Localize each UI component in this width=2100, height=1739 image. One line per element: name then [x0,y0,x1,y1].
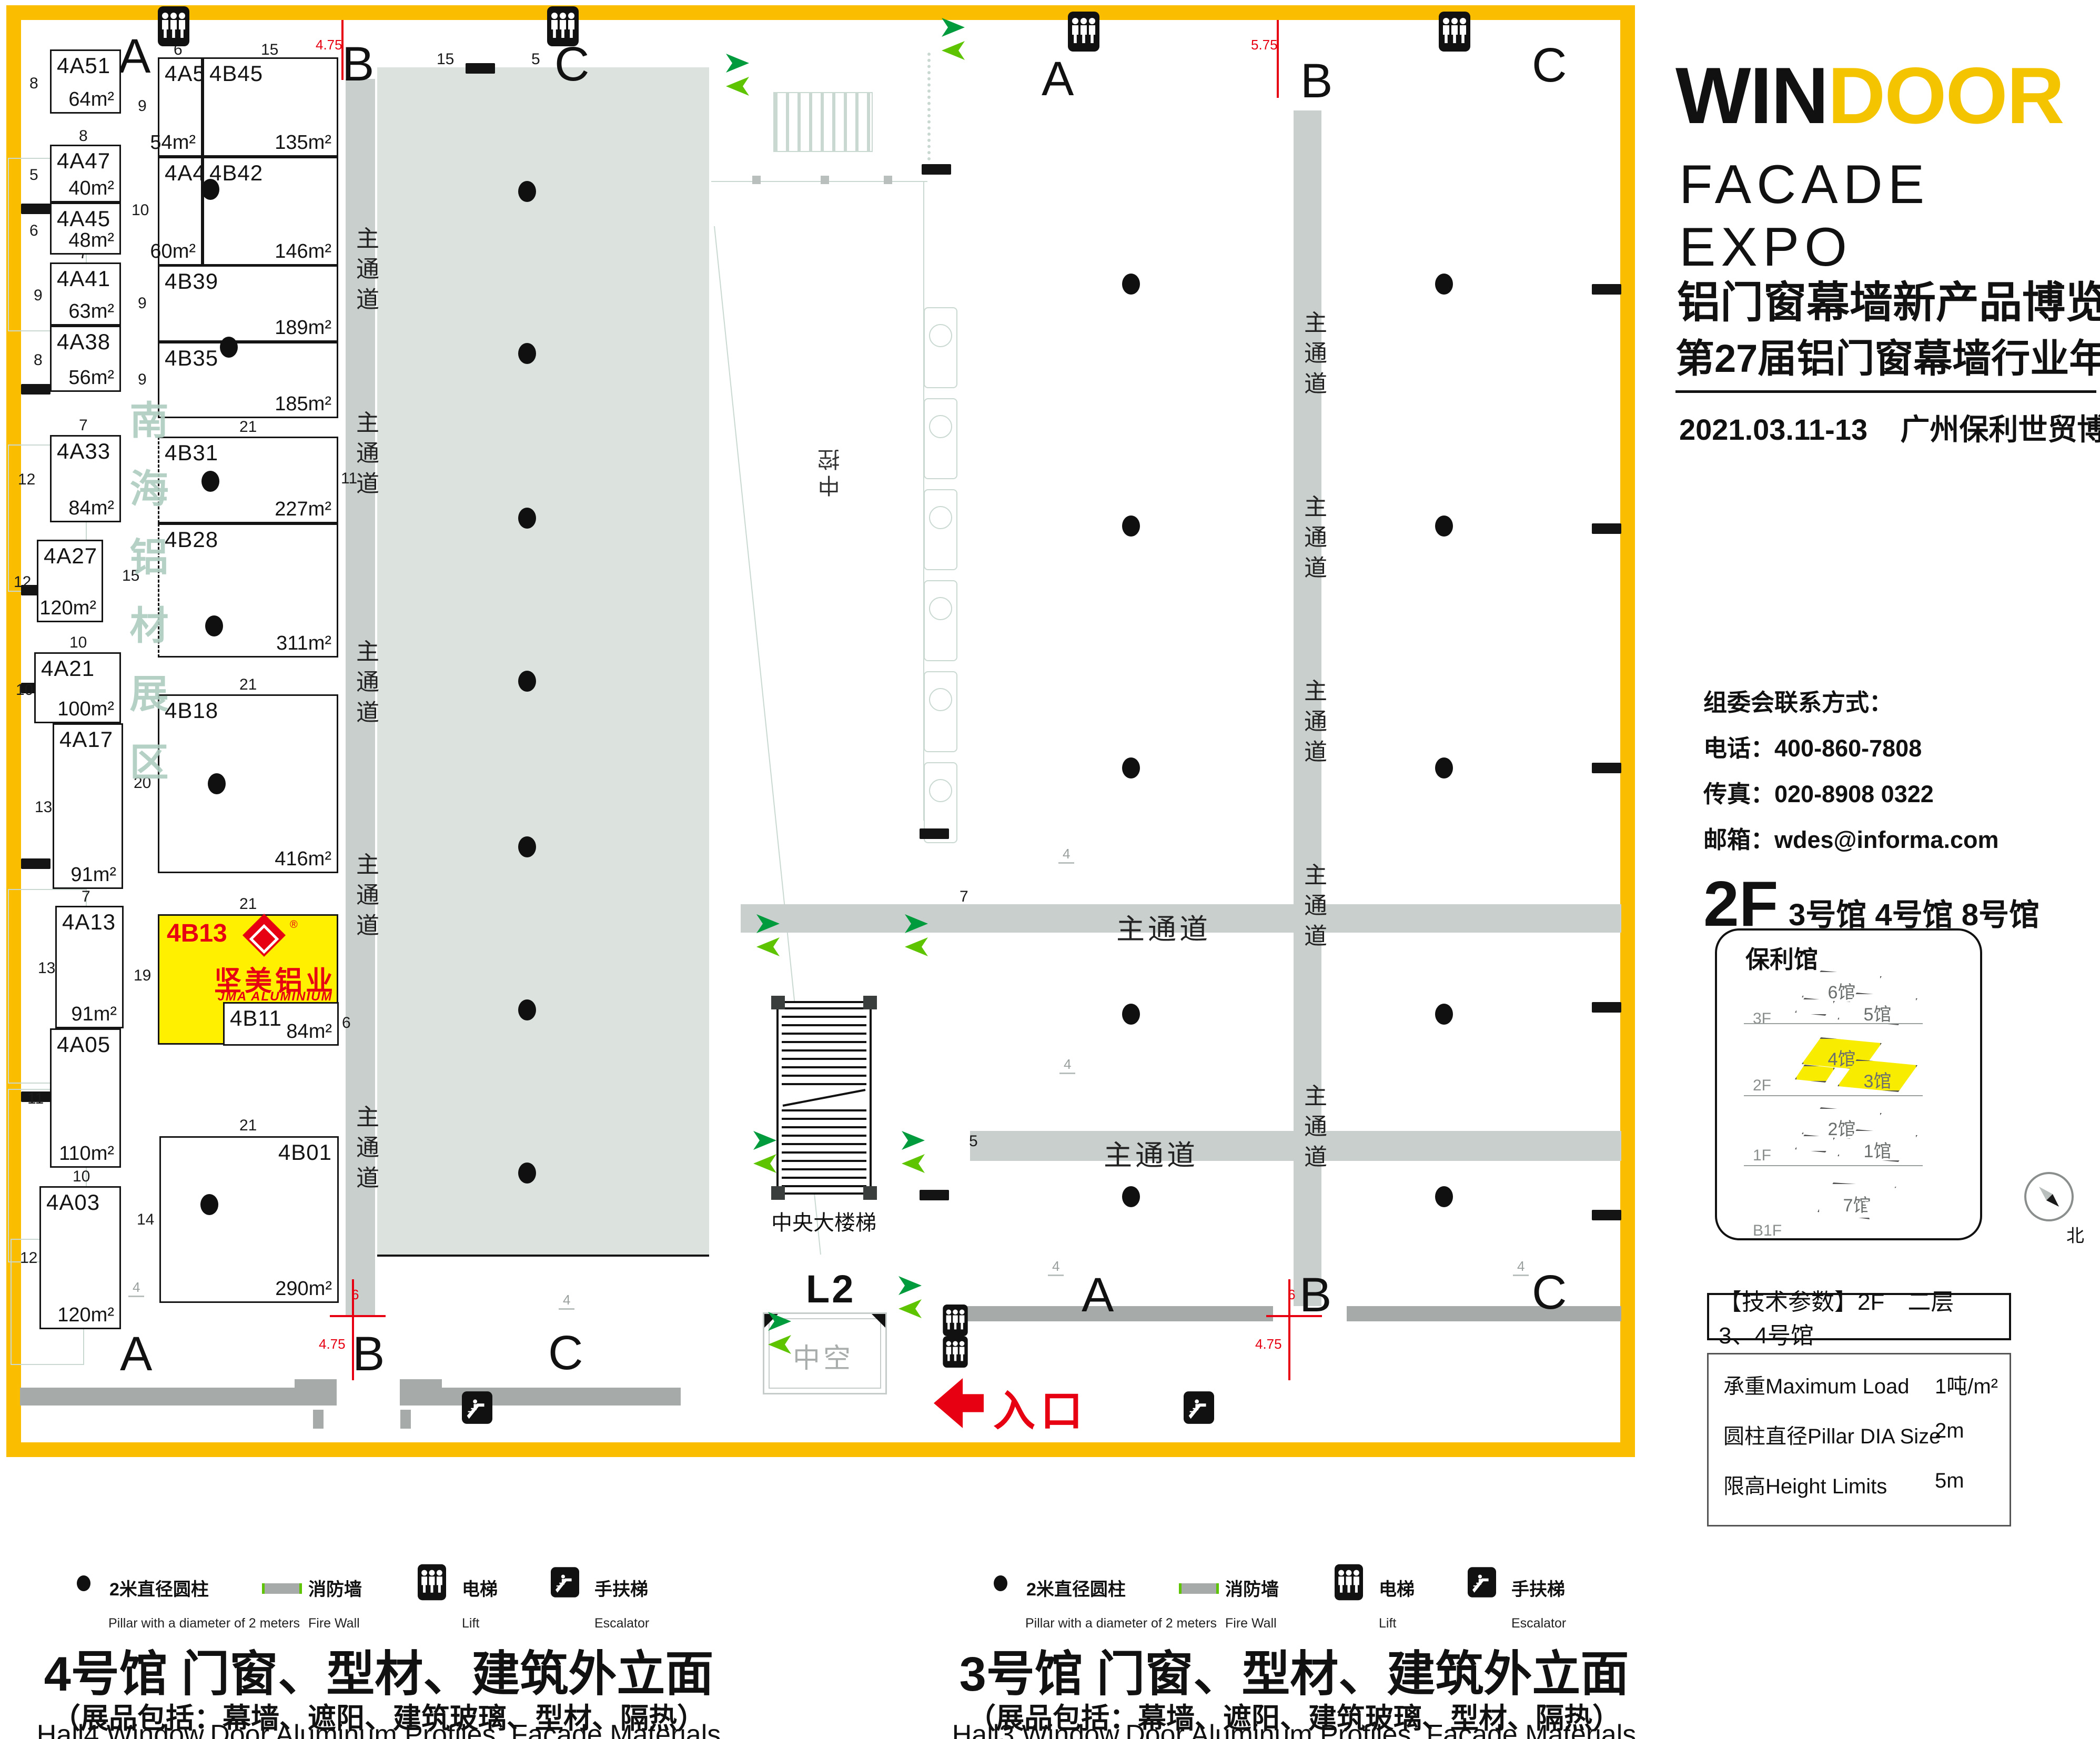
legend-firewall-en: Fire Wall [1225,1616,1277,1631]
tech-params-title-text: 【技术参数】2F 二层 3、4号馆 [1719,1283,2009,1350]
skylight-structure [773,92,873,152]
dimension-label: 21 [239,418,257,436]
fire-wall-mark [21,204,51,214]
booth-4A33: 4A3384m² [50,435,121,522]
dimension-label-gray: 4 [1058,846,1074,864]
main-aisle-label: 主通道 [1296,1084,1330,1175]
booth-code: 4A41 [57,266,110,291]
booth-4A27: 4A27120m² [37,540,103,622]
direction-arrow-icon [749,1130,781,1175]
booth-4A21: 4A21100m² [34,652,121,723]
escalator-icon-wrap [462,1391,492,1424]
dimension-label: 9 [138,371,147,389]
legend-pillar-dot [77,1575,90,1591]
booth-code: 4B11 [230,1006,282,1031]
legend-lift-en: Lift [1379,1616,1396,1631]
booth-area: 120m² [39,597,96,620]
fire-wall-mark [920,828,949,839]
booth-area: 227m² [275,498,331,521]
stair-corner [771,1186,785,1200]
stack-level-label: 3F [1753,1010,1771,1028]
booth-4A05: 4A05110m² [50,1028,121,1168]
lift-icon-wrap [547,6,579,46]
fire-wall-mark [466,63,495,74]
dimension-label: 12 [14,573,31,591]
direction-arrows [901,913,932,958]
booth-code: 4A47 [57,148,110,174]
direction-arrow-icon [764,1311,795,1356]
fire-wall-mark [920,1190,949,1200]
main-aisle-label: 主通道 [1296,679,1330,770]
pillar-dot [201,471,219,492]
hall3-caption-en: Hall3 Window,Door,Aluminum Profiles, Fac… [936,1719,1652,1739]
central-control-label: 中控 [814,444,846,497]
expo-annual-cn: 第27届铝门窗幕墙行业年会 [1675,327,2100,383]
booth-area: 290m² [275,1278,332,1300]
booth-code: 4B39 [165,269,218,294]
dimension-label: 7 [79,417,88,434]
dimension-label: 9 [138,97,147,115]
booth-code: 4A21 [41,656,95,681]
compass-needle [2026,1174,2072,1219]
booth-code: 4A45 [57,206,110,231]
legend-escalator-cn: 手扶梯 [594,1575,648,1601]
main-aisle-label: 主通道 [1296,863,1330,954]
zone-letter-C: C [1532,1265,1567,1320]
registered-mark: ® [290,919,298,931]
legend-lift-cn: 电梯 [462,1575,498,1601]
logo-win: WIN [1675,51,1828,140]
fire-wall-mark [1592,1002,1621,1013]
direction-arrow-icon [937,17,969,62]
dimension-label: 5 [29,166,38,184]
boundary-wall [400,1388,681,1406]
lift-icon [158,6,189,46]
dimension-label: 8 [34,351,43,369]
booth-4B28: 4B28311m² [158,523,338,658]
contact-heading: 组委会联系方式： [1703,680,1998,725]
central-staircase-label: 中央大楼梯 [745,1206,903,1236]
stair-core-outline [924,398,957,479]
dimension-label-red: 4.75 [316,37,342,53]
direction-arrows [937,17,969,62]
legend-escalator-cn: 手扶梯 [1511,1575,1565,1601]
booth-area: 91m² [70,864,116,886]
contact-phone: 电话：400-860-7808 [1703,725,1998,771]
booth-code: 4B01 [278,1140,332,1165]
compass-label: 北 [2066,1221,2084,1247]
booth-4A51: 4A5164m² [50,49,121,114]
booth-area: 54m² [150,132,196,154]
lift-icon [943,1336,968,1368]
dimension-label: 7 [82,888,90,906]
boundary-wall [400,1379,442,1397]
booth-code: 4B45 [209,61,263,86]
dimension-label: 9 [34,287,43,305]
pillar-dot [208,773,226,794]
fire-wall-mark [21,858,51,869]
zone-letter-B: B [352,1327,385,1382]
direction-arrow-icon [722,53,753,98]
booth-area: 48m² [68,229,114,252]
dimension-label: 11 [27,1090,44,1108]
legend-pillar-en: Pillar with a diameter of 2 meters [108,1616,300,1631]
booth-code: 4A17 [59,727,113,752]
dimension-line-red [1277,20,1279,98]
date-venue: 2021.03.11-13 广州保利世贸博览馆 [1679,406,2100,449]
dimension-label-gray: 4 [128,1279,144,1297]
dimension-label: 10 [132,201,149,219]
hall4-open-area [377,67,709,1257]
main-aisle-label: 主通道 [348,226,382,318]
main-aisle-strip [970,1131,1621,1161]
booth-4B11: 4B1184m² [223,1002,339,1046]
boundary-wall [20,1388,337,1406]
legend-escalator-icon [551,1560,579,1604]
zone-letter-B: B [1300,54,1332,109]
fire-wall-mark [1592,763,1621,773]
booth-area: 56m² [68,367,114,389]
stack-hall-annex [1795,998,1835,1016]
booth-code: 4B13 [167,919,227,948]
stair-corner [863,996,877,1009]
booth-4A17: 4A1791m² [53,723,123,889]
legend-lift-cn: 电梯 [1379,1575,1415,1601]
booth-area: 84m² [68,497,114,520]
booth-area: 135m² [275,132,331,154]
legend-lift-icon [1335,1560,1363,1604]
tech-row-load-value: 1吨/m² [1935,1369,1998,1400]
escalator-icon [1184,1391,1214,1424]
structure-tick [884,176,892,184]
booth-4A47: 4A4740m² [50,145,121,203]
pillar-dot [518,999,536,1020]
pillar-dot [1122,1186,1140,1207]
main-aisle-label: 主通道 [348,410,382,502]
pillar-dot [1122,1004,1140,1025]
zone-letter-A: A [120,1327,152,1382]
escalator-icon [462,1391,492,1424]
lift-icon-wrap [158,6,189,46]
booth-code: 4A33 [57,439,110,464]
booth-code: 4A27 [44,543,97,569]
tech-row-height-label: 限高Height Limits [1723,1469,1887,1500]
legend-pillar-dot [994,1575,1007,1591]
direction-arrows [749,1130,781,1175]
fire-wall-mark [1592,523,1621,534]
tech-row-load-label: 承重Maximum Load [1723,1369,1909,1400]
fire-wall-mark [1592,284,1621,295]
booth-code: 4A38 [57,329,110,355]
void-corner [872,1314,885,1328]
boundary-wall [1347,1306,1621,1321]
zone-letter-C: C [548,1326,583,1381]
fire-wall-mark [1592,1210,1621,1220]
pillar-dot [201,179,219,200]
pillar-dot [518,836,536,857]
boundary-wall [295,1379,337,1397]
stack-separator [1744,1165,1923,1166]
dimension-label: 10 [73,1168,90,1186]
lift-icon-wrap [1068,12,1099,52]
booth-4A52: 4A5254m² [158,57,203,157]
stair-core-outline [924,671,957,752]
pillar-dot [1435,757,1453,778]
dimension-line-red [1288,1279,1290,1380]
dimension-label-red: 4.75 [319,1336,346,1352]
dimension-label: 7 [960,888,968,906]
dimension-label: 6 [29,222,38,240]
fire-wall-mark [922,164,951,175]
zone-letter-A: A [1082,1268,1114,1323]
booth-code: 4A51 [57,53,110,78]
escalator-icon-wrap [1184,1391,1214,1424]
legend-pillar-en: Pillar with a diameter of 2 meters [1025,1616,1217,1631]
stack-level-label: 2F [1753,1077,1771,1095]
brand-logo: WINDOOR [1675,50,2063,142]
legend-pillar-cn: 2米直径圆柱 [109,1575,209,1601]
direction-arrows [752,913,784,958]
lift-icon [547,6,579,46]
dimension-label: 6 [342,1014,351,1032]
booth-4A41: 4A4163m² [50,262,121,326]
dimension-label: 14 [137,1211,154,1229]
boundary-wall [400,1410,411,1429]
stack-level-label: B1F [1753,1222,1782,1240]
direction-arrows [897,1130,929,1175]
tech-params-table: 承重Maximum Load 1吨/m² 圆柱直径Pillar DIA Size… [1707,1353,2011,1526]
dimension-label: 19 [134,967,151,985]
boundary-wall [967,1306,1273,1321]
lift-icon [1335,1560,1363,1604]
contact-fax: 传真：020-8908 0322 [1703,771,1998,817]
direction-arrow-icon [894,1275,926,1320]
booth-4B42: 4B42146m² [203,157,338,266]
main-aisle-label: 主通道 [1116,906,1211,947]
booth-4A45: 4A4548m² [50,203,121,255]
boundary-wall [313,1410,324,1429]
dimension-line-red [330,1315,386,1317]
dimension-label: 21 [239,895,257,913]
dimension-label-gray: 4 [1513,1258,1529,1276]
booth-4B31: 4B31227m² [158,437,338,523]
legend-firewall-sample [1179,1583,1219,1594]
main-aisle-label: 主通道 [348,639,382,731]
main-aisle-label: 主通道 [1296,310,1330,402]
booth-area: 60m² [150,240,196,263]
dimension-label: 13 [35,798,52,816]
legend-lift-icon [418,1560,446,1604]
dimension-label: 10 [16,681,33,699]
stair-corner [771,996,785,1009]
zone-letter-A: A [118,29,150,84]
booth-code: 4A13 [62,909,116,935]
stair-core-outline [924,307,957,388]
entrance-label: 入口 [993,1377,1088,1438]
stack-hall-annex [1795,1065,1835,1083]
dimension-label: 5 [969,1133,978,1150]
dimension-label: 9 [138,295,147,312]
booth-code: 4A03 [46,1190,100,1215]
booth-area: 110m² [59,1143,114,1165]
stack-hall-7馆: 7馆 [1818,1182,1896,1219]
direction-arrow-icon [897,1130,929,1175]
dimension-label: 5 [531,50,540,68]
direction-arrows [894,1275,926,1320]
pillar-dot [518,671,536,692]
booth-code: 4A05 [57,1032,110,1057]
lift-icon [1068,12,1099,52]
tech-row-pillar-value: 2m [1935,1419,1964,1443]
pillar-dot [1122,274,1140,295]
structure-tick [821,176,829,184]
booth-4A46: 4A4660m² [158,157,203,266]
lift-icon [1439,12,1470,52]
legend-escalator-en: Escalator [1511,1616,1566,1631]
pillar-dot [518,181,536,202]
pillar-dot [518,1162,536,1184]
logo-door: DOOR [1828,51,2063,140]
escalator-icon [551,1560,579,1604]
jma-logo-icon [243,914,286,957]
booth-area: 40m² [68,177,114,200]
main-aisle-label: 主通道 [348,852,382,944]
windoor-expo-floorplan: 主通道主通道主通道主通道主通道主通道主通道主通道主通道主通道主通道主通道4A51… [0,0,2100,1739]
booth-4A03: 4A03120m² [39,1186,121,1329]
l2-label: L2 [806,1267,855,1311]
dimension-label-red: 5.75 [1251,37,1278,53]
pillar-dot [1435,515,1453,537]
dimension-label-red: 4.75 [1255,1336,1282,1352]
legend-pillar-cn: 2米直径圆柱 [1026,1575,1126,1601]
stair-core-outline [924,580,957,661]
pillar-dot [220,337,238,358]
booth-4A38: 4A3856m² [50,326,121,392]
booth-area: 189m² [275,317,331,339]
booth-code: 4B42 [209,160,263,186]
direction-arrows [722,53,753,98]
tech-row-height-value: 5m [1935,1469,1964,1493]
booth-4B18: 4B18416m² [158,694,338,873]
fire-wall-mark [21,384,51,395]
expo-title-cn: 铝门窗幕墙新产品博览会 [1677,267,2100,330]
lift-icon-wrap [1439,12,1470,52]
pillar-dot [205,615,223,636]
direction-arrow-icon [752,913,784,958]
stack-separator [1744,1095,1923,1096]
dimension-label: 8 [29,75,38,93]
lift-icon [418,1560,446,1604]
zone-watermark: 南海铝材展区 [118,400,174,810]
dimension-label: 21 [239,1117,257,1135]
booth-area: 91m² [71,1003,117,1026]
zone-letter-B: B [1299,1268,1331,1323]
compass [2024,1172,2074,1221]
zone-letter-B: B [342,37,374,92]
dimension-label: 15 [437,50,454,68]
legend-firewall-cn: 消防墙 [1225,1575,1279,1601]
booth-area: 64m² [68,88,114,111]
logo-subtitle: FACADE EXPO [1679,154,2100,279]
direction-arrow-icon [901,913,932,958]
tech-row-pillar-label: 圆柱直径Pillar DIA Size [1723,1419,1941,1450]
pillar-dot [200,1194,218,1215]
title-rule [1675,390,2096,393]
main-aisle-label: 主通道 [1104,1132,1198,1174]
hall4-caption-en: Hall4 Window,Door,Aluminum Profiles, Fac… [21,1719,736,1739]
booth-area: 416m² [275,848,331,871]
booth-area: 120m² [57,1304,114,1327]
tech-params-title: 【技术参数】2F 二层 3、4号馆 [1707,1293,2011,1340]
legend-escalator-en: Escalator [594,1616,649,1631]
dimension-label-gray: 4 [1048,1258,1064,1276]
dimension-label: 8 [79,127,88,145]
pillar-dot [518,343,536,364]
stair-corner [863,1186,877,1200]
pillar-dot [1435,274,1453,295]
dimension-label: 15 [261,41,278,59]
lift-icon [943,1305,968,1336]
dimension-label: 10 [69,634,87,652]
booth-4B35: 4B35185m² [158,342,338,418]
booth-area: 185m² [275,393,331,416]
booth-area: 100m² [57,698,114,721]
main-aisle-label: 主通道 [348,1105,382,1196]
booth-area: 63m² [68,300,114,323]
zone-letter-C: C [1532,38,1567,93]
pillar-dot [1122,515,1140,537]
structure-tick [752,176,761,184]
booth-4B39: 4B39189m² [158,265,338,342]
booth-area: 84m² [286,1020,332,1043]
booth-area: 146m² [275,240,331,263]
main-aisle-label: 主通道 [1296,494,1330,586]
legend-firewall-en: Fire Wall [308,1616,360,1631]
legend-lift-en: Lift [462,1616,479,1631]
escalator-icon [1468,1560,1496,1604]
booth-4B45: 4B45135m² [203,57,338,157]
stair-core-outline [924,489,957,570]
legend-escalator-icon [1468,1560,1496,1604]
structure-line-top [711,181,927,182]
dimension-label: 12 [18,471,35,489]
pillar-dot [1435,1004,1453,1025]
dimension-label: 21 [239,676,257,694]
curtain-line [927,53,944,160]
stack-hall-annex [1795,1135,1835,1152]
floor-plan: 主通道主通道主通道主通道主通道主通道主通道主通道主通道主通道主通道主通道4A51… [0,0,1683,1525]
legend-firewall-cn: 消防墙 [308,1575,362,1601]
dimension-label: 12 [20,1249,37,1267]
zone-letter-A: A [1042,52,1074,107]
floor-stack: 3F6馆5馆2F4馆3馆1F2馆1馆B1F7馆 [1715,952,1978,1236]
stair-midline [779,1003,870,1192]
central-staircase [776,1001,872,1195]
dimension-label: 13 [38,959,55,977]
dimension-label-gray: 4 [559,1292,574,1310]
booth-area: 311m² [276,632,331,655]
booth-code: 4B35 [165,346,218,371]
pillar-dot [1435,1186,1453,1207]
floor-halls: 3号馆 4号馆 8号馆 [1789,890,2040,934]
contact-email: 邮箱：wdes@informa.com [1703,817,1998,863]
pillar-dot [1122,757,1140,778]
pillar-dot [518,508,536,529]
booth-4B01: 4B01290m² [159,1136,339,1303]
booth-4A13: 4A1391m² [55,906,124,1028]
stack-level-label: 1F [1753,1147,1771,1165]
legend-firewall-sample [262,1583,302,1594]
